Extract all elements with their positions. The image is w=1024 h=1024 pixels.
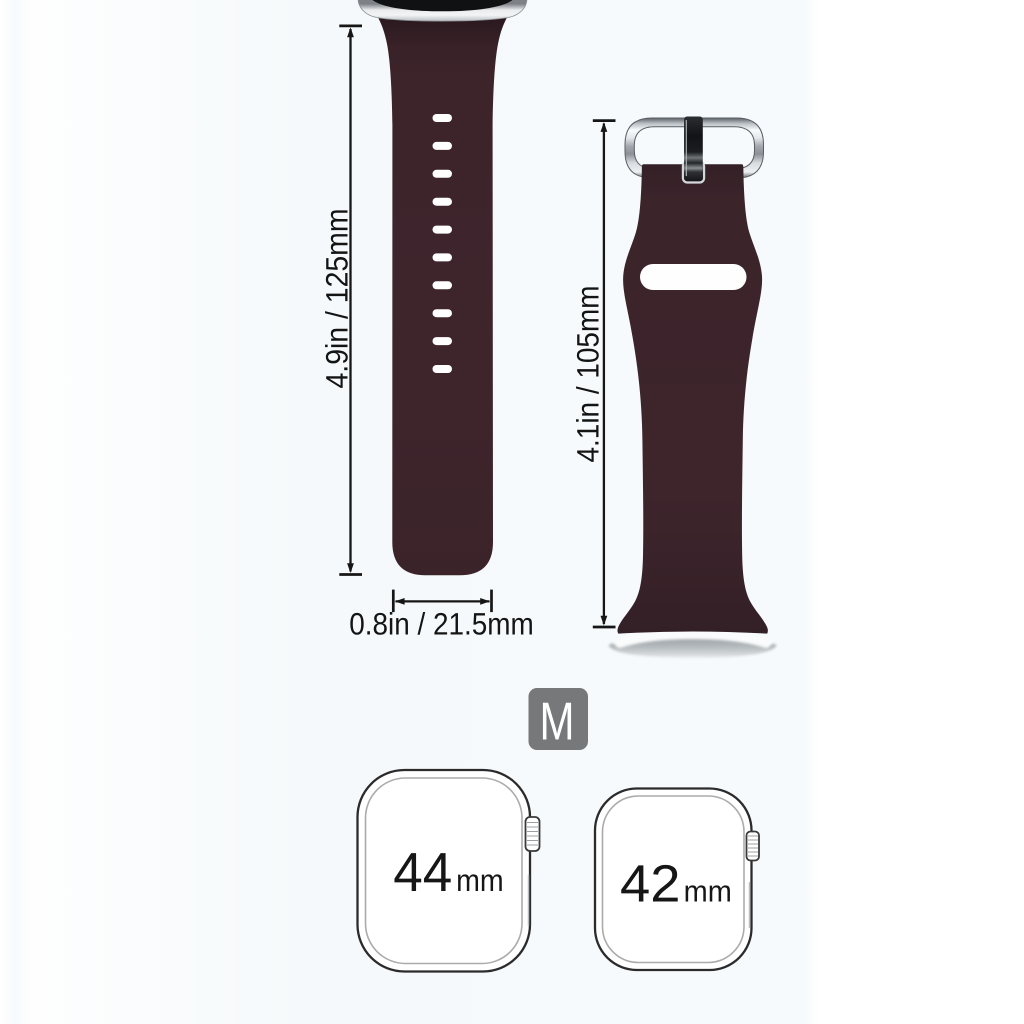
svg-text:0.8in / 21.5mm: 0.8in / 21.5mm [349,607,534,642]
svg-text:mm: mm [456,863,504,898]
svg-text:4.1in / 105mm: 4.1in / 105mm [571,286,606,463]
svg-text:42: 42 [620,854,681,913]
svg-text:mm: mm [684,875,732,908]
svg-text:4.9in / 125mm: 4.9in / 125mm [320,209,355,389]
svg-text:M: M [540,692,575,751]
svg-text:44: 44 [393,841,452,903]
